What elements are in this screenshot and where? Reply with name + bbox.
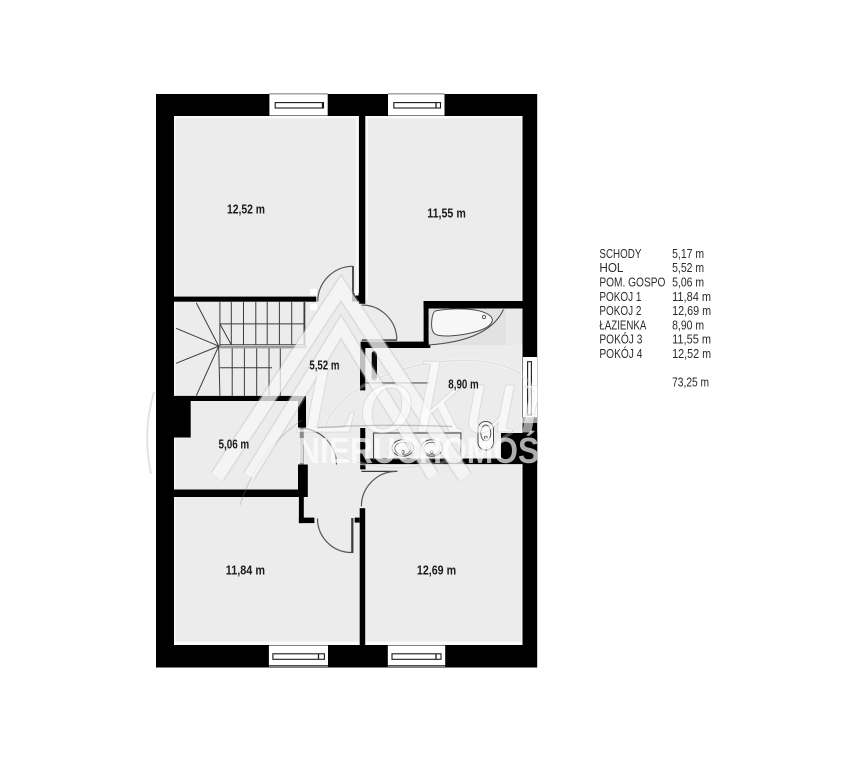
svg-text:12,52 m: 12,52 m	[227, 203, 265, 217]
svg-text:11,84 m: 11,84 m	[672, 290, 711, 304]
svg-text:12,52 m: 12,52 m	[672, 347, 711, 361]
svg-text:12,69 m: 12,69 m	[417, 563, 456, 577]
svg-text:SCHODY: SCHODY	[599, 247, 642, 261]
svg-text:HOL: HOL	[599, 261, 623, 275]
svg-text:NIERUCHOMOŚCI: NIERUCHOMOŚCI	[297, 429, 571, 471]
svg-text:5,06 m: 5,06 m	[672, 276, 704, 290]
svg-text:ŁAZIENKA: ŁAZIENKA	[599, 318, 647, 332]
svg-text:11,55 m: 11,55 m	[427, 207, 466, 221]
svg-text:5,17 m: 5,17 m	[672, 247, 704, 261]
svg-text:POKOJ 2: POKOJ 2	[599, 304, 641, 318]
svg-text:73,25 m: 73,25 m	[672, 375, 709, 389]
svg-text:POKÓJ 3: POKÓJ 3	[599, 332, 642, 347]
svg-text:POKÓJ 4: POKÓJ 4	[599, 346, 642, 361]
svg-text:5,52 m: 5,52 m	[309, 359, 339, 373]
svg-text:11,84 m: 11,84 m	[226, 563, 265, 577]
svg-text:5,06 m: 5,06 m	[219, 438, 250, 452]
svg-text:8,90 m: 8,90 m	[448, 378, 478, 392]
svg-text:POKOJ 1: POKOJ 1	[599, 290, 641, 304]
svg-text:11,55 m: 11,55 m	[672, 333, 711, 347]
svg-text:12,69 m: 12,69 m	[672, 304, 711, 318]
svg-text:8,90 m: 8,90 m	[672, 318, 704, 332]
svg-text:POM. GOSPO: POM. GOSPO	[599, 276, 665, 290]
svg-text:5,52 m: 5,52 m	[672, 261, 704, 275]
